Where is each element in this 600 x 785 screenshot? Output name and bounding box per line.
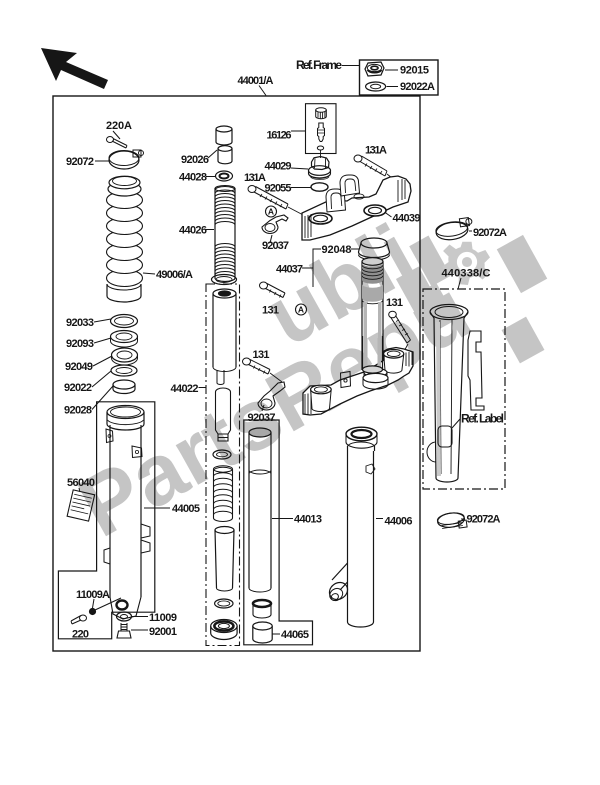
svg-text:92026: 92026: [181, 154, 209, 166]
svg-text:131A: 131A: [244, 172, 266, 184]
svg-text:11009: 11009: [149, 612, 177, 624]
svg-text:92072: 92072: [66, 156, 94, 168]
svg-text:44005: 44005: [172, 503, 200, 515]
svg-text:92048: 92048: [322, 244, 352, 256]
svg-text:44029: 44029: [265, 161, 292, 173]
svg-text:92015: 92015: [400, 65, 429, 77]
svg-text:131A: 131A: [365, 144, 387, 156]
svg-text:92033: 92033: [66, 317, 94, 329]
svg-text:92022A: 92022A: [400, 81, 435, 93]
svg-text:44065: 44065: [281, 629, 309, 641]
svg-text:A: A: [298, 305, 304, 315]
svg-text:92037: 92037: [262, 240, 289, 252]
svg-text:44013: 44013: [294, 514, 322, 526]
svg-text:16126: 16126: [267, 130, 292, 142]
svg-text:92055: 92055: [265, 183, 292, 195]
svg-text:44028: 44028: [179, 172, 207, 184]
svg-text:56040: 56040: [67, 477, 95, 489]
svg-text:131: 131: [262, 305, 279, 317]
svg-text:92028: 92028: [64, 405, 92, 417]
svg-text:440338/C: 440338/C: [442, 268, 491, 280]
svg-text:44037: 44037: [276, 264, 303, 276]
svg-text:220: 220: [72, 629, 89, 641]
svg-text:44022: 44022: [171, 383, 199, 395]
svg-text:220A: 220A: [106, 120, 132, 132]
svg-text:44001/A: 44001/A: [238, 75, 274, 87]
svg-text:A: A: [268, 207, 274, 217]
svg-text:Ref. Label: Ref. Label: [461, 412, 504, 426]
svg-text:92072A: 92072A: [473, 227, 507, 239]
svg-text:92072A: 92072A: [467, 514, 501, 526]
svg-text:92037: 92037: [248, 412, 276, 424]
svg-text:11009A: 11009A: [76, 589, 110, 601]
svg-text:44006: 44006: [385, 516, 413, 528]
svg-text:131: 131: [386, 297, 403, 309]
svg-text:44026: 44026: [179, 225, 207, 237]
svg-text:92001: 92001: [149, 626, 177, 638]
svg-text:49006/A: 49006/A: [156, 269, 193, 281]
svg-text:92022: 92022: [64, 382, 92, 394]
svg-text:92093: 92093: [66, 338, 94, 350]
svg-text:44039: 44039: [393, 213, 421, 225]
svg-text:131: 131: [253, 349, 270, 361]
svg-text:92049: 92049: [65, 361, 93, 373]
svg-text:Ref. Frame: Ref. Frame: [296, 58, 342, 72]
